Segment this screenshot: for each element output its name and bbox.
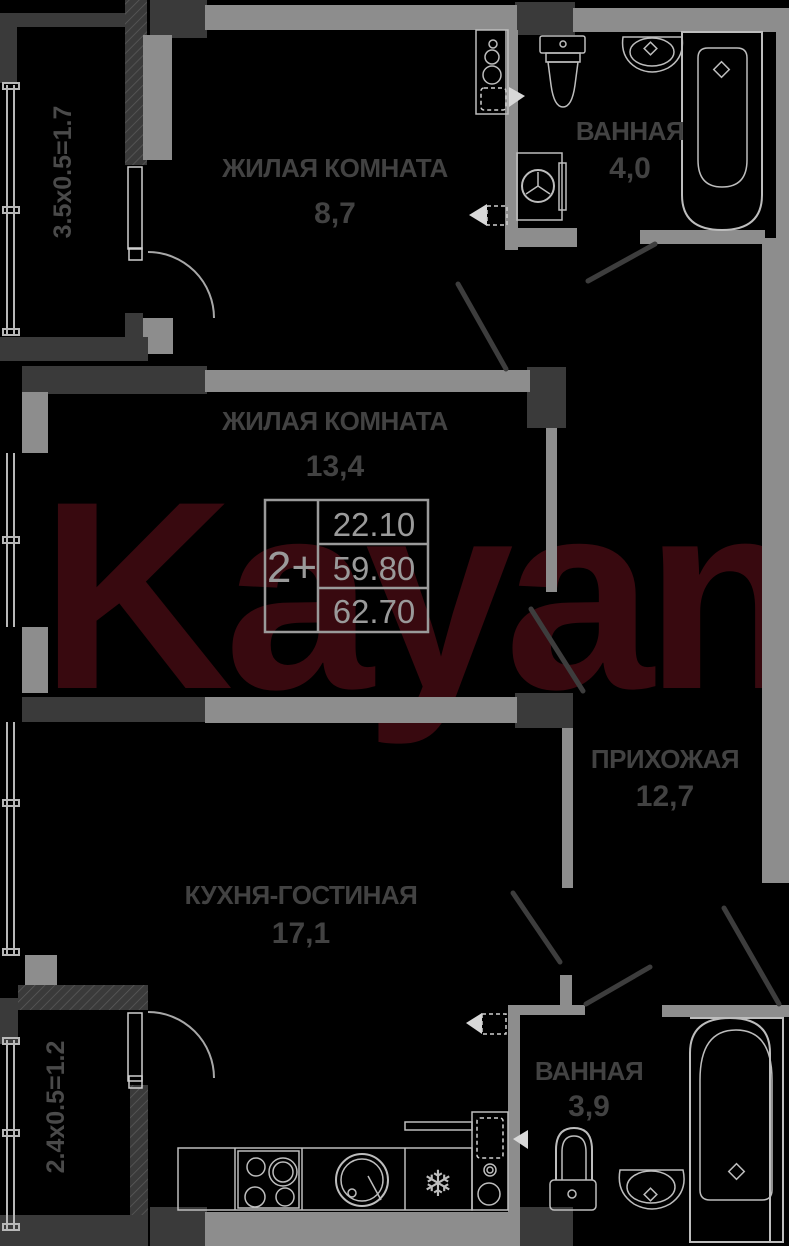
svg-text:❄: ❄	[423, 1164, 453, 1205]
room-name: КУХНЯ-ГОСТИНАЯ	[185, 880, 418, 910]
balcony-bottom-label: 2.4х0.5=1.2	[42, 1041, 70, 1174]
room-area: 3,9	[568, 1090, 610, 1123]
room-area: 4,0	[609, 152, 651, 185]
area-value-2: 59.80	[333, 550, 416, 587]
room-name: ЖИЛАЯ КОМНАТА	[221, 406, 448, 436]
balcony-top-label: 3.5х0.5=1.7	[49, 106, 77, 239]
room-name: ВАННАЯ	[576, 116, 684, 146]
area-value-3: 62.70	[333, 593, 416, 630]
room-area: 17,1	[272, 917, 330, 950]
room-area: 8,7	[314, 197, 356, 230]
floor-plan: Kayan	[0, 0, 789, 1246]
room-name: ПРИХОЖАЯ	[591, 744, 739, 774]
room-area: 13,4	[306, 450, 365, 483]
room-area: 12,7	[636, 780, 694, 813]
unit-type: 2+	[267, 543, 317, 592]
area-value-1: 22.10	[333, 506, 416, 543]
room-name: ВАННАЯ	[535, 1056, 643, 1086]
room-name: ЖИЛАЯ КОМНАТА	[221, 153, 448, 183]
